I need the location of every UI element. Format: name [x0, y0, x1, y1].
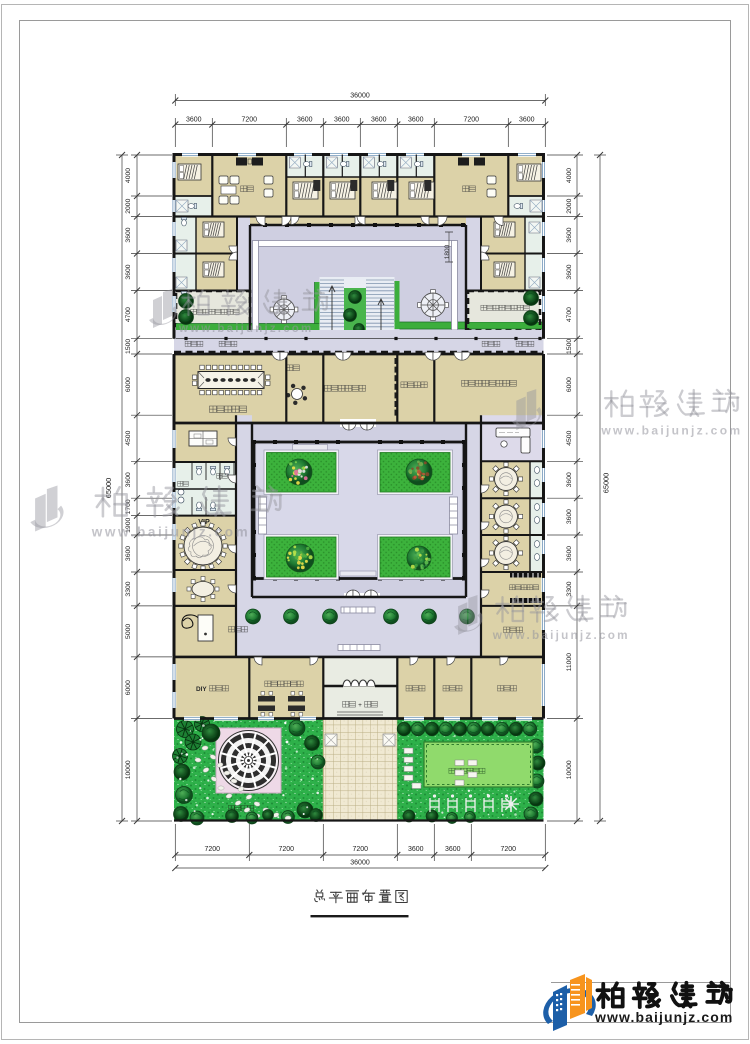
svg-text:3600: 3600 [186, 117, 202, 124]
svg-text:7200: 7200 [353, 846, 369, 853]
svg-text:36000: 36000 [350, 860, 370, 867]
svg-text:www.baijunjz.com: www.baijunjz.com [178, 323, 313, 335]
svg-text:4700: 4700 [125, 307, 132, 322]
svg-text:4500: 4500 [566, 430, 573, 445]
svg-text:10000: 10000 [566, 760, 573, 779]
svg-text:3600: 3600 [371, 117, 387, 124]
svg-text:3600: 3600 [566, 227, 573, 242]
svg-text:65000: 65000 [602, 473, 611, 494]
svg-text:5000: 5000 [125, 624, 132, 639]
svg-text:www.baijunjz.com: www.baijunjz.com [600, 423, 742, 437]
svg-text:1800: 1800 [444, 244, 451, 259]
svg-text:3300: 3300 [566, 581, 573, 596]
svg-text:3600: 3600 [408, 846, 424, 853]
svg-text:4000: 4000 [125, 168, 132, 183]
svg-text:7200: 7200 [242, 117, 258, 124]
svg-text:www.baijunjz.com: www.baijunjz.com [91, 524, 251, 539]
svg-text:7200: 7200 [464, 117, 480, 124]
svg-text:3600: 3600 [566, 472, 573, 487]
svg-text:+: + [358, 702, 362, 709]
svg-text:4700: 4700 [566, 307, 573, 322]
svg-text:2000: 2000 [125, 198, 132, 213]
svg-text:3600: 3600 [334, 117, 350, 124]
svg-text:4000: 4000 [566, 168, 573, 183]
svg-text:10000: 10000 [125, 760, 132, 779]
svg-text:3600: 3600 [125, 227, 132, 242]
svg-text:7200: 7200 [205, 846, 221, 853]
svg-text:3600: 3600 [445, 846, 461, 853]
svg-text:3600: 3600 [125, 546, 132, 561]
svg-text:3600: 3600 [297, 117, 313, 124]
svg-text:3300: 3300 [125, 581, 132, 596]
svg-text:4500: 4500 [125, 430, 132, 445]
svg-text:DIY: DIY [196, 686, 207, 693]
svg-text:www.baijunjz.com: www.baijunjz.com [492, 629, 630, 642]
svg-text:www.baijunjz.com: www.baijunjz.com [594, 1009, 733, 1025]
svg-text:3600: 3600 [125, 472, 132, 487]
svg-text:3600: 3600 [566, 264, 573, 279]
svg-text:3600: 3600 [408, 117, 424, 124]
svg-text:3600: 3600 [519, 117, 535, 124]
svg-text:6000: 6000 [125, 377, 132, 392]
svg-text:3600: 3600 [566, 546, 573, 561]
svg-text:3600: 3600 [125, 264, 132, 279]
svg-text:1500: 1500 [566, 339, 573, 354]
svg-text:6000: 6000 [566, 377, 573, 392]
svg-text:36000: 36000 [350, 93, 370, 100]
svg-text:2000: 2000 [566, 198, 573, 213]
svg-text:7200: 7200 [501, 846, 517, 853]
svg-text:1500: 1500 [125, 339, 132, 354]
svg-text:6000: 6000 [125, 680, 132, 695]
svg-text:11000: 11000 [566, 653, 573, 672]
svg-text:7200: 7200 [279, 846, 295, 853]
svg-text:3600: 3600 [566, 509, 573, 524]
